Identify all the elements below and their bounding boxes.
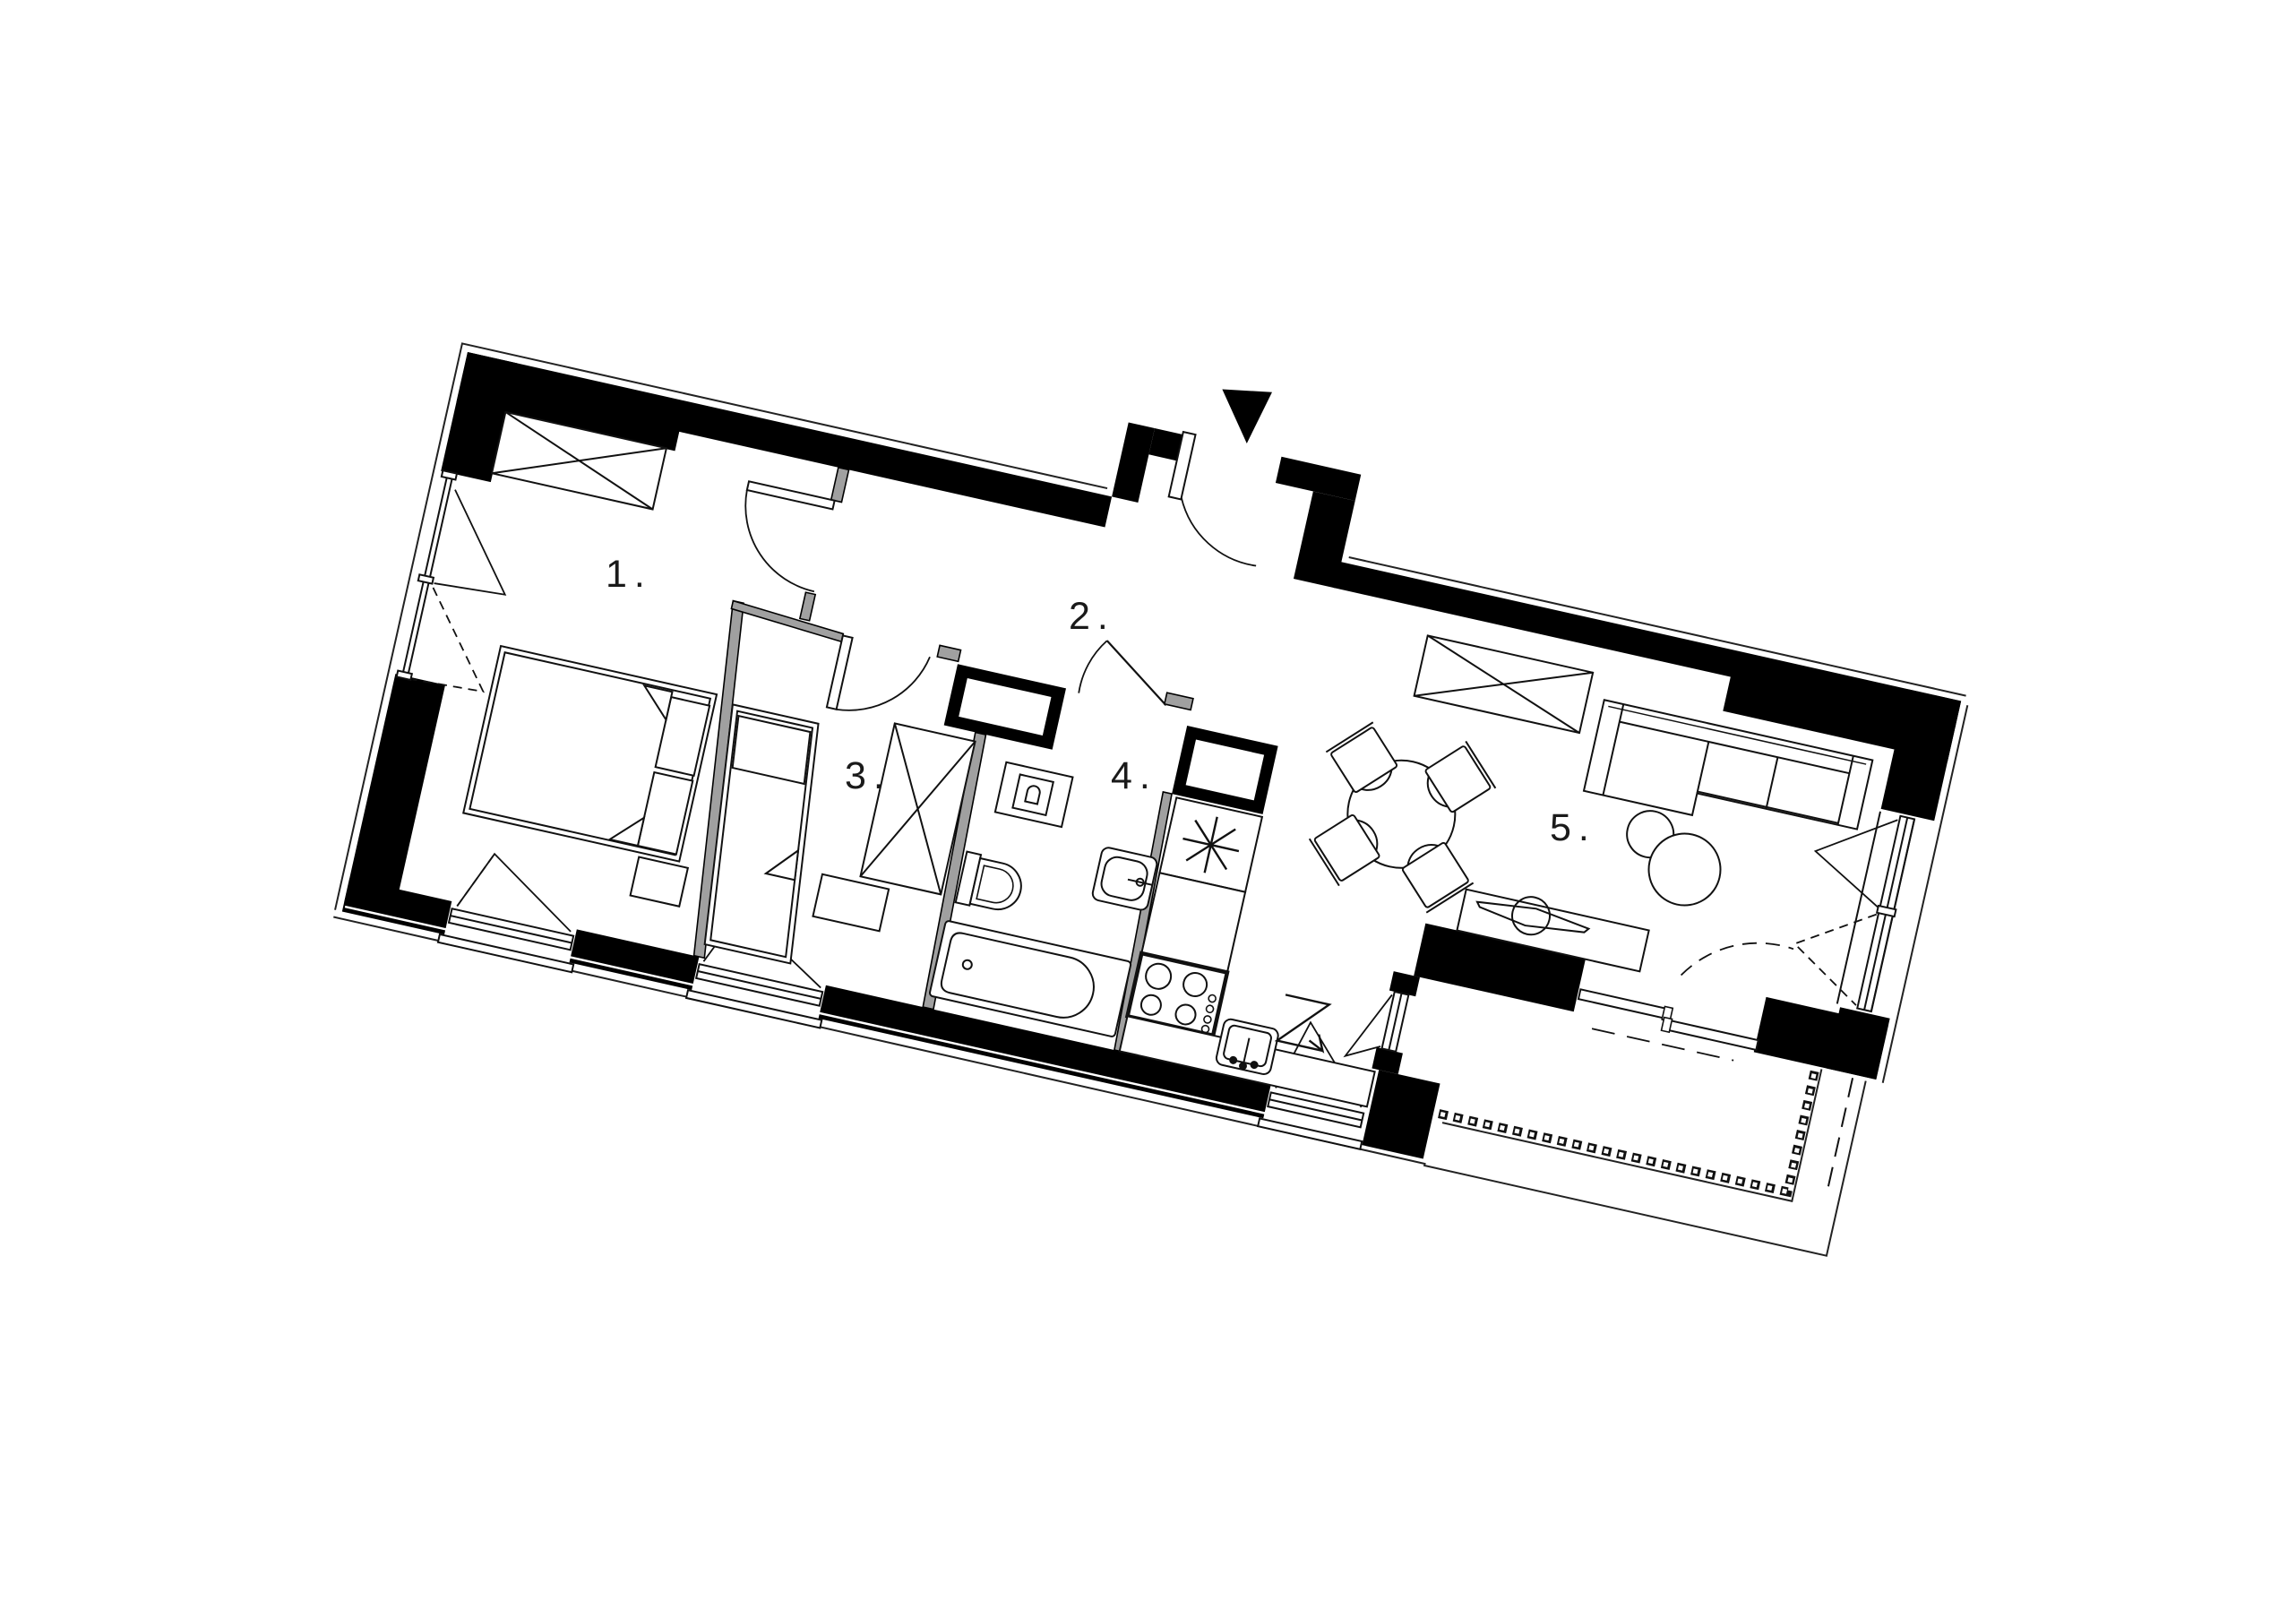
svg-text:2.: 2. bbox=[1069, 595, 1108, 638]
svg-text:5.: 5. bbox=[1550, 806, 1589, 849]
svg-text:1.: 1. bbox=[606, 553, 645, 596]
svg-text:4.: 4. bbox=[1111, 754, 1150, 797]
svg-text:3.: 3. bbox=[845, 754, 884, 797]
